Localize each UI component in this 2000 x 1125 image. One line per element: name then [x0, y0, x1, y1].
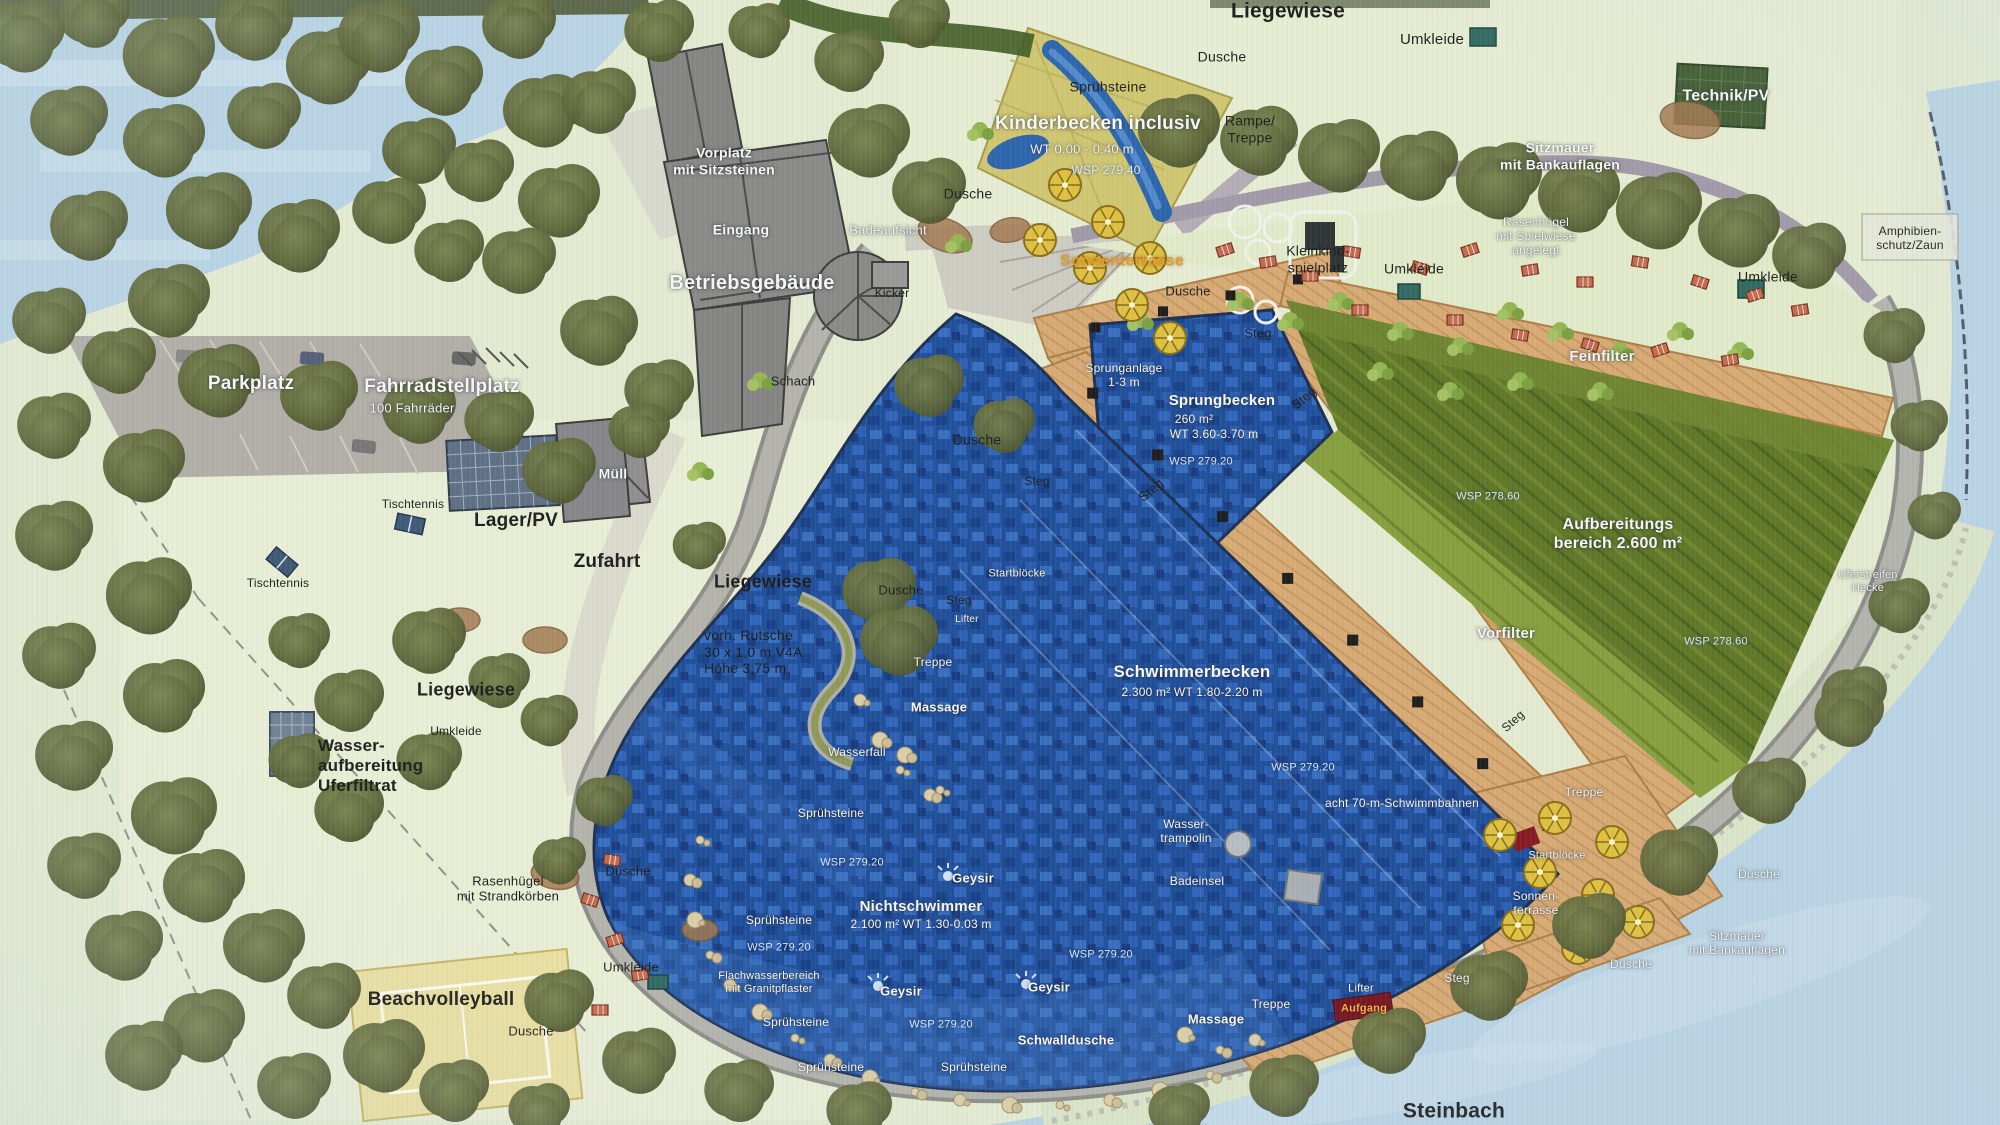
plan-label: Dusche: [508, 1023, 553, 1038]
plan-label: 2.100 m² WT 1.30-0.03 m: [850, 917, 991, 931]
plan-label: Sprühsteine: [798, 806, 864, 820]
plan-label: Wasserfall: [828, 745, 886, 759]
plan-label: Schwimmerbecken: [1113, 662, 1270, 682]
plan-label: Treppe: [1252, 997, 1291, 1011]
plan-label: Aufgang: [1341, 1003, 1387, 1016]
plan-label: Umkleide: [1738, 269, 1798, 286]
plan-label: Steg: [1444, 971, 1470, 985]
plan-label: Sprühsteine: [941, 1060, 1007, 1074]
plan-label: Badeinsel: [1170, 874, 1225, 888]
plan-label: WSP 279.20: [1069, 949, 1133, 962]
plan-label: Sprungbecken: [1169, 392, 1276, 410]
plan-label: Steg: [1136, 475, 1167, 504]
plan-label: Geysir: [1028, 979, 1070, 994]
plan-label: Vorfilter: [1477, 625, 1535, 643]
plan-label: WSP 279.40: [1071, 163, 1140, 177]
plan-label: Umkleide: [1384, 261, 1444, 278]
plan-label: Badeaufsicht: [849, 222, 927, 237]
plan-label: acht 70-m-Schwimmbahnen: [1325, 796, 1479, 810]
plan-label: Sitzmauer mit Bankauflagen: [1689, 929, 1785, 957]
plan-label: Tischtennis: [382, 497, 444, 511]
plan-label: Dusche: [605, 863, 650, 878]
plan-label: Sonnen- terrasse: [1513, 889, 1560, 917]
plan-label: Dusche: [878, 582, 923, 597]
plan-label: Geysir: [952, 870, 994, 885]
plan-label: Feinfilter: [1569, 348, 1634, 366]
plan-label: Dusche: [953, 432, 1002, 449]
plan-label: WSP 279.20: [820, 857, 884, 870]
plan-label: Schach: [771, 373, 816, 388]
plan-label: Sprühsteine: [798, 1060, 864, 1074]
plan-label: Wasser- aufbereitung Uferfiltrat: [318, 736, 423, 796]
plan-label: Rasenhügel mit Strandkörben: [457, 874, 559, 905]
plan-label: Geysir: [880, 983, 922, 998]
plan-label: Umkleide: [1400, 31, 1464, 49]
plan-label: Rasenhügel mit Spielwiese angelegt: [1496, 215, 1576, 257]
plan-label: Fahrradstellplatz: [364, 376, 519, 398]
plan-label: Steinbach: [1403, 1100, 1505, 1125]
plan-label: Liegewiese: [714, 571, 812, 592]
plan-label: WT 3.60-3.70 m: [1170, 427, 1259, 441]
plan-label: Zufahrt: [574, 551, 641, 573]
plan-label: Steg: [1499, 707, 1527, 735]
plan-label: Startblöcke: [988, 568, 1045, 581]
plan-label: Massage: [911, 699, 967, 714]
plan-label: WT 0.00 - 0.40 m: [1030, 141, 1133, 156]
plan-label: Wasser- trampolin: [1160, 817, 1211, 845]
plan-label: Vorplatz mit Sitzsteinen: [673, 144, 775, 177]
plan-label: WSP 278.60: [1684, 636, 1748, 649]
plan-label: Sprühsteine: [746, 913, 812, 927]
plan-label: Kleinkind- spielplatz: [1286, 242, 1349, 275]
plan-label: Aufbereitungs bereich 2.600 m²: [1554, 516, 1683, 554]
plan-label: Steg: [1244, 325, 1272, 340]
plan-label: WSP 279.20: [747, 942, 811, 955]
plan-label: Dusche: [944, 186, 993, 203]
plan-label: WSP 278.60: [1456, 491, 1520, 504]
plan-label: Steg: [946, 593, 972, 607]
plan-label: Liegewiese: [1231, 0, 1345, 24]
plan-label: Umkleide: [603, 959, 659, 974]
plan-label: Sprunganlage 1-3 m: [1085, 361, 1162, 389]
plan-label: 2.300 m² WT 1.80-2.20 m: [1121, 685, 1262, 699]
plan-label: Treppe: [914, 655, 953, 669]
plan-label: Sonnenterrasse: [1060, 253, 1184, 272]
plan-label: WSP 279.20: [1169, 456, 1233, 469]
plan-label: Nichtschwimmer: [860, 898, 983, 916]
plan-label: Sprühsteine: [763, 1015, 829, 1029]
plan-label: WSP 279.20: [909, 1019, 973, 1032]
plan-label: WSP 279.20: [1271, 762, 1335, 775]
plan-label: Lifter: [1348, 983, 1374, 996]
plan-label: Dusche: [1610, 957, 1652, 971]
plan-label: Rampe/ Treppe: [1225, 112, 1275, 145]
plan-label: Parkplatz: [208, 373, 294, 395]
plan-label: Steg: [1024, 474, 1050, 488]
plan-label: Dusche: [1738, 867, 1780, 881]
plan-label: Lifter: [955, 614, 978, 626]
plan-label: 100 Fahrräder: [370, 400, 455, 415]
plan-label: Beachvolleyball: [368, 989, 515, 1011]
plan-label: Kicker: [875, 286, 910, 300]
plan-label: Startblöcke: [1528, 850, 1585, 863]
plan-label: Lager/PV: [474, 510, 558, 532]
plan-label: Liegewiese: [417, 679, 515, 700]
plan-label: Steg: [1289, 383, 1320, 412]
plan-label: Technik/PV: [1682, 88, 1769, 107]
plan-label: Massage: [1188, 1011, 1244, 1026]
plan-label: Dusche: [1165, 283, 1210, 298]
plan-label: Eingang: [713, 222, 770, 239]
plan-label: Betriebsgebäude: [669, 272, 834, 296]
site-plan-photo: LiegewieseDuscheUmkleideTechnik/PVSprühs…: [0, 0, 2000, 1125]
plan-label: Dusche: [1198, 49, 1247, 66]
plan-label: Tischtennis: [247, 576, 309, 590]
plan-label: Flachwasserbereich mit Granitpflaster: [718, 970, 819, 996]
plan-label: Treppe: [1565, 785, 1604, 799]
plan-label: 260 m²: [1175, 412, 1214, 426]
plan-label: vorh. Rutsche 30 x 1,0 m V4A Höhe 3,75 m: [704, 627, 803, 677]
plan-label: Sprühsteine: [1070, 79, 1147, 96]
plan-label: Schwalldusche: [1018, 1032, 1115, 1047]
plan-label: Uferstreifen Hecke: [1838, 569, 1897, 595]
plan-label: Umkleide: [430, 724, 482, 738]
plan-label: Müll: [599, 466, 628, 483]
plan-label: Amphibien- schutz/Zaun: [1876, 224, 1944, 252]
plan-label: Sitzmauer mit Bankauflagen: [1500, 139, 1620, 172]
plan-label: Kinderbecken inclusiv: [995, 113, 1201, 135]
plan-labels-layer: LiegewieseDuscheUmkleideTechnik/PVSprühs…: [0, 0, 2000, 1125]
